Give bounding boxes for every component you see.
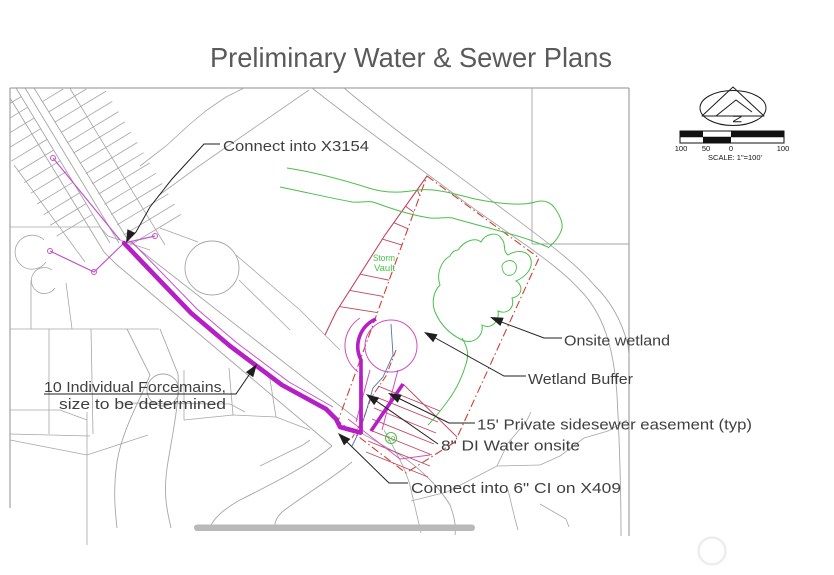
svg-text:0: 0 — [729, 144, 733, 153]
svg-text:10 Individual Forcemains,: 10 Individual Forcemains, — [44, 379, 226, 396]
svg-text:10: 10 — [387, 434, 395, 443]
svg-text:8" DI Water onsite: 8" DI Water onsite — [441, 438, 580, 455]
svg-text:SCALE: 1"=100': SCALE: 1"=100' — [708, 153, 762, 162]
svg-text:Onsite wetland: Onsite wetland — [564, 333, 670, 350]
svg-text:Storm: Storm — [373, 253, 395, 263]
svg-text:Connect into 6" CI on X409: Connect into 6" CI on X409 — [411, 480, 621, 497]
svg-text:Preliminary Water & Sewer Plan: Preliminary Water & Sewer Plans — [210, 42, 612, 73]
svg-text:Connect into X3154: Connect into X3154 — [223, 138, 369, 155]
svg-text:Vault: Vault — [374, 263, 396, 273]
svg-text:size to be determined: size to be determined — [59, 396, 226, 413]
svg-text:100: 100 — [675, 144, 688, 153]
svg-text:100: 100 — [777, 144, 790, 153]
svg-text:15' Private sidesewer easement: 15' Private sidesewer easement (typ) — [477, 417, 752, 434]
svg-text:N: N — [730, 115, 742, 123]
svg-text:50: 50 — [702, 144, 710, 153]
svg-text:Wetland Buffer: Wetland Buffer — [528, 371, 633, 388]
